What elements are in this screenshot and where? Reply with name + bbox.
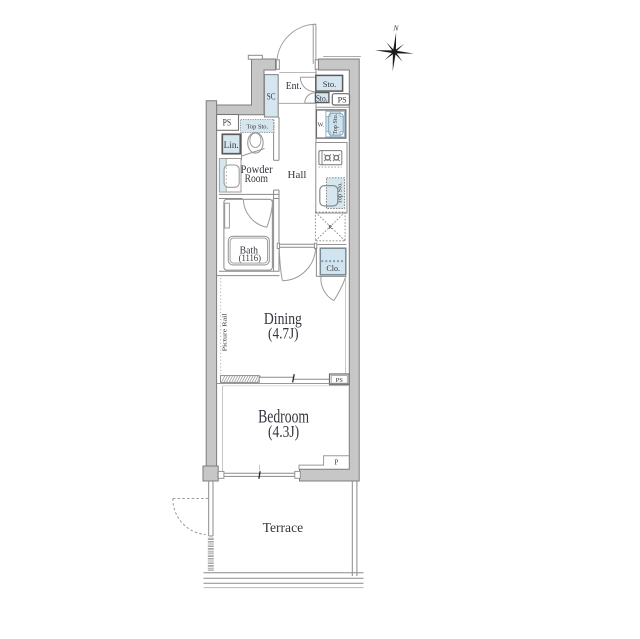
- svg-text:Ent.: Ent.: [286, 81, 302, 92]
- svg-text:Clo.: Clo.: [326, 264, 340, 273]
- svg-text:Sto.: Sto.: [323, 79, 337, 89]
- svg-text:(4.7J): (4.7J): [268, 326, 299, 343]
- svg-text:Hall: Hall: [288, 169, 307, 181]
- svg-text:Terrace: Terrace: [263, 521, 304, 536]
- svg-text:SC: SC: [267, 92, 276, 102]
- svg-text:W.: W.: [318, 122, 325, 129]
- svg-text:Room: Room: [245, 171, 269, 185]
- svg-text:Top Sto.: Top Sto.: [332, 113, 339, 134]
- svg-text:(4.3J): (4.3J): [268, 422, 299, 441]
- svg-text:Top Sto.: Top Sto.: [247, 123, 269, 130]
- svg-text:PS: PS: [223, 119, 232, 129]
- svg-text:Lin.: Lin.: [224, 140, 239, 150]
- svg-text:PS: PS: [338, 95, 347, 105]
- svg-text:Sto.: Sto.: [316, 93, 328, 104]
- svg-text:(1116): (1116): [239, 253, 261, 263]
- svg-text:PS: PS: [336, 377, 344, 384]
- svg-text:P: P: [335, 459, 339, 467]
- svg-text:R: R: [328, 225, 332, 231]
- svg-text:Picture Rail: Picture Rail: [222, 313, 229, 351]
